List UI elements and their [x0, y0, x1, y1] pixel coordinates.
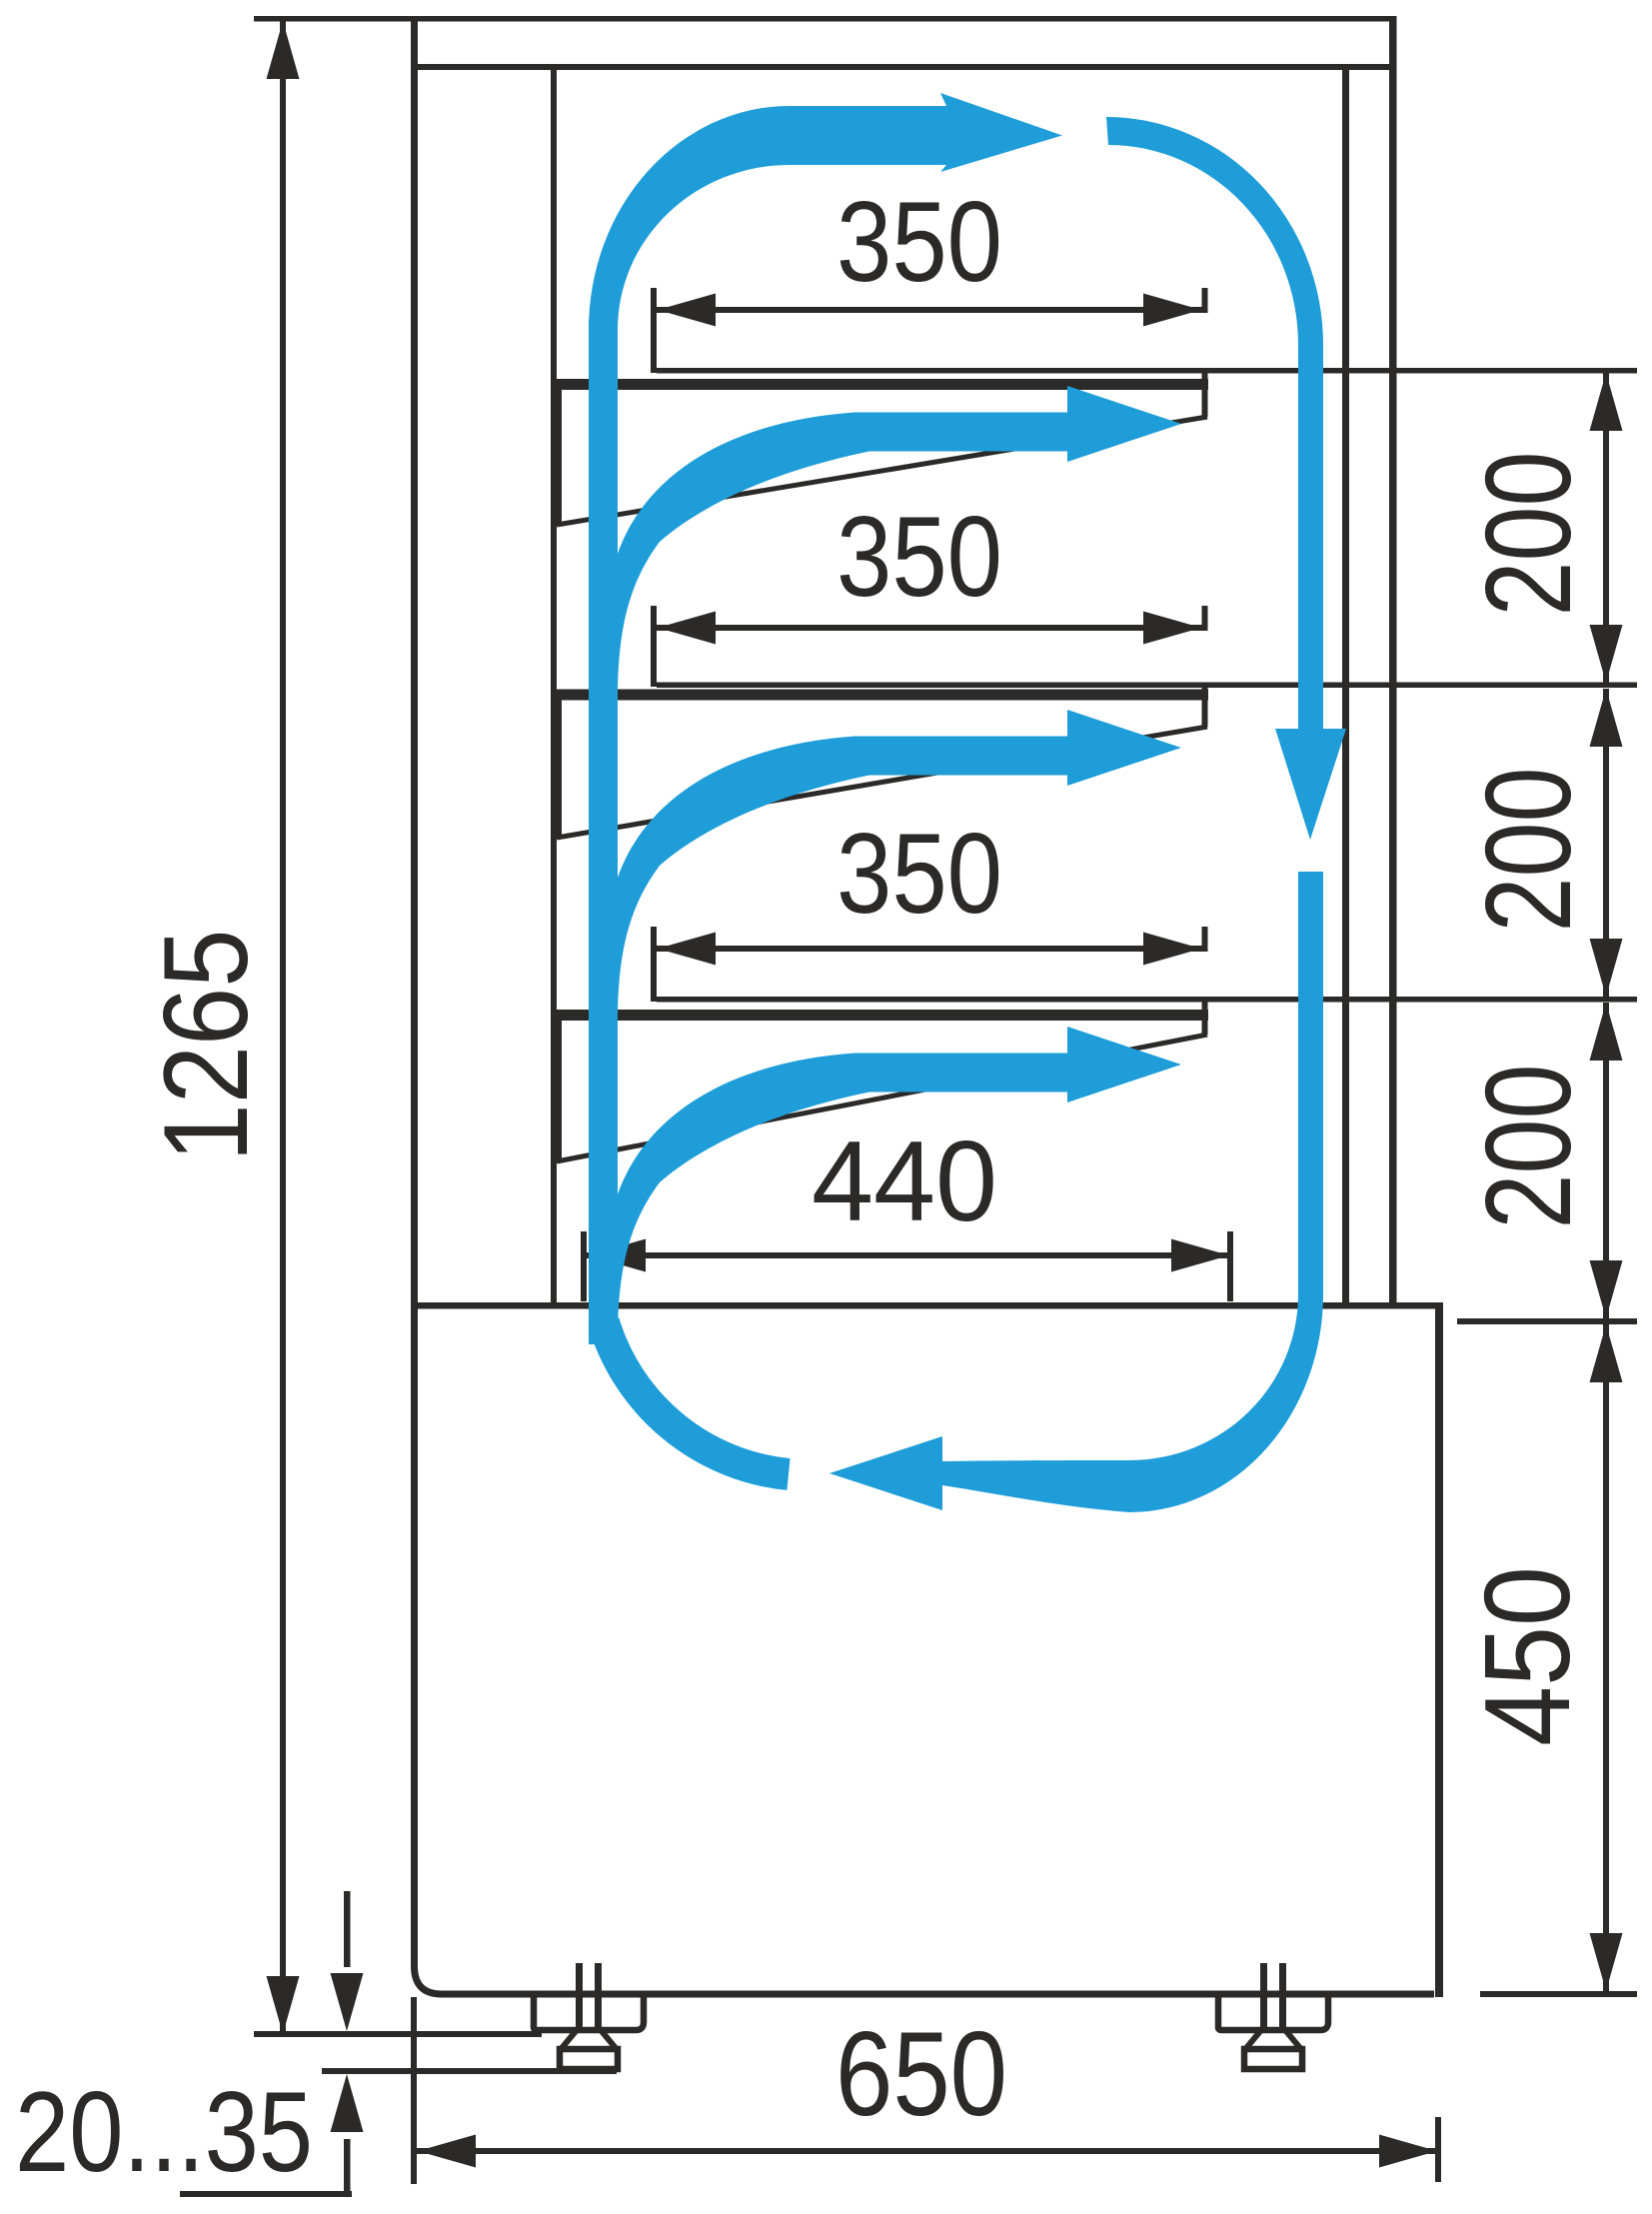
svg-text:1265: 1265	[139, 930, 273, 1162]
svg-text:200: 200	[1460, 452, 1596, 617]
svg-text:350: 350	[836, 494, 1002, 621]
svg-text:350: 350	[836, 179, 1002, 306]
svg-text:650: 650	[835, 2007, 1007, 2141]
svg-text:350: 350	[836, 811, 1002, 938]
svg-text:440: 440	[812, 1118, 997, 1245]
svg-text:20...35: 20...35	[15, 2069, 313, 2196]
svg-text:200: 200	[1460, 768, 1596, 933]
svg-text:200: 200	[1460, 1065, 1596, 1229]
svg-text:450: 450	[1459, 1566, 1595, 1746]
